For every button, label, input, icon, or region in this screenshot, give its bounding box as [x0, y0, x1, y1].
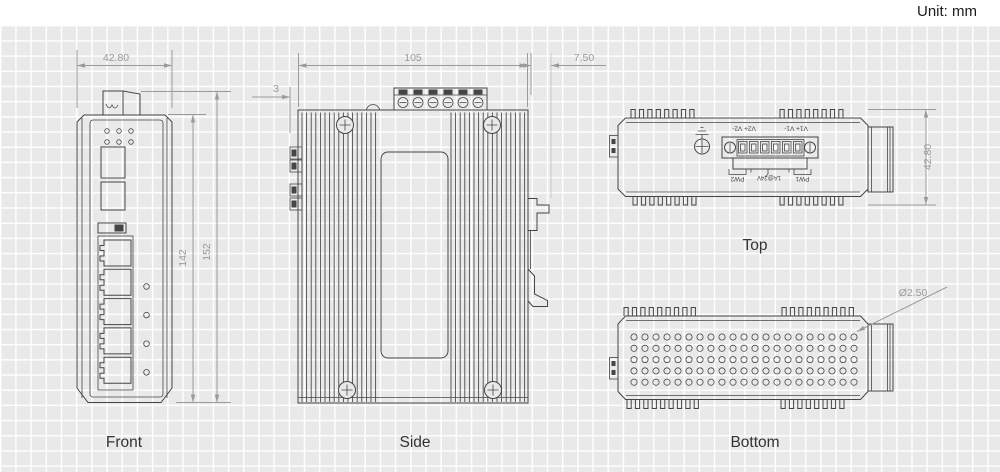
- vent-hole: [785, 379, 791, 385]
- vent-hole: [664, 368, 670, 374]
- vent-hole: [675, 334, 681, 340]
- side-port-tabs: [290, 147, 302, 210]
- vent-hole: [818, 379, 824, 385]
- vent-hole: [807, 379, 813, 385]
- vent-hole: [785, 345, 791, 351]
- vent-hole: [675, 345, 681, 351]
- dim-side-width: 105: [404, 52, 422, 64]
- vent-hole: [686, 357, 692, 363]
- front-port-leds: [144, 284, 150, 375]
- vent-hole: [719, 368, 725, 374]
- vent-hole: [664, 379, 670, 385]
- port-led: [144, 312, 150, 318]
- vent-hole: [708, 334, 714, 340]
- vent-hole: [829, 379, 835, 385]
- rj45-port: [100, 299, 131, 325]
- din-rail-clip: [528, 199, 549, 307]
- vent-hole-grid: [631, 334, 857, 385]
- rj45-port: [100, 357, 131, 383]
- front-rj45-ports: [100, 240, 131, 383]
- side-dimensions: 105 7.50 3: [252, 52, 606, 198]
- port-tab-mark: [292, 187, 297, 194]
- vent-hole: [697, 368, 703, 374]
- vent-hole: [631, 345, 637, 351]
- side-heatsink-fins: [302, 113, 525, 403]
- vent-hole: [763, 379, 769, 385]
- vent-hole: [719, 345, 725, 351]
- terminal-pole-slot: [785, 144, 790, 151]
- vent-hole: [730, 345, 736, 351]
- vent-hole: [851, 334, 857, 340]
- vent-hole: [708, 345, 714, 351]
- front-dimensions: 42.80 142 152: [77, 50, 231, 403]
- vent-hole: [730, 368, 736, 374]
- vent-hole: [851, 379, 857, 385]
- terminal-pole-slot: [774, 144, 779, 151]
- ground-symbol-icon: [696, 128, 709, 140]
- bottom-din-block: [868, 324, 893, 391]
- sfp-slot: [101, 182, 125, 210]
- vent-hole: [708, 368, 714, 374]
- top-left-tab: [610, 136, 619, 158]
- terminal-label-pw1: PW1: [795, 175, 809, 182]
- vent-hole: [840, 368, 846, 374]
- vent-hole: [818, 357, 824, 363]
- vent-hole: [796, 379, 802, 385]
- vent-hole: [752, 379, 758, 385]
- vent-hole: [741, 357, 747, 363]
- vent-hole: [653, 357, 659, 363]
- vent-hole: [796, 368, 802, 374]
- caption-bottom: Bottom: [730, 434, 779, 451]
- terminal-label-rating: 1A@24V: [757, 174, 781, 180]
- vent-hole: [697, 334, 703, 340]
- vent-hole: [774, 379, 780, 385]
- vent-hole: [807, 345, 813, 351]
- fin-tooth-row: [780, 110, 847, 119]
- rj45-port: [100, 269, 131, 295]
- front-port-column: [98, 236, 133, 390]
- vent-hole: [840, 345, 846, 351]
- side-body-outline: [298, 110, 528, 403]
- terminal-pole-slot: [796, 144, 801, 151]
- dim-hole-diameter: Ø2.50: [899, 287, 928, 299]
- fin-tooth-row: [631, 110, 698, 119]
- terminal-clamp: [444, 90, 453, 95]
- caption-side: Side: [399, 434, 430, 451]
- vent-hole: [642, 345, 648, 351]
- ground-screw-icon: [695, 128, 710, 155]
- top-din-block: [868, 127, 893, 192]
- vent-hole: [807, 368, 813, 374]
- status-led: [129, 129, 134, 134]
- terminal-pole-slot: [741, 144, 746, 151]
- dim-din-clip: 7.50: [574, 52, 595, 64]
- status-led: [105, 140, 110, 145]
- top-dimensions: 42.80: [868, 110, 936, 206]
- front-dip-switch: [98, 223, 126, 233]
- vent-hole: [719, 379, 725, 385]
- dim-tab-protrusion: 3: [273, 83, 279, 95]
- vent-hole: [675, 357, 681, 363]
- vent-hole: [818, 334, 824, 340]
- vent-hole: [829, 345, 835, 351]
- vent-hole: [686, 368, 692, 374]
- vent-hole: [664, 345, 670, 351]
- vent-hole: [840, 334, 846, 340]
- vent-hole: [741, 379, 747, 385]
- dim-front-total-height: 152: [201, 243, 213, 261]
- vent-hole: [697, 379, 703, 385]
- vent-hole: [752, 368, 758, 374]
- status-led: [117, 140, 122, 145]
- engineering-drawing: 42.80 142 152: [0, 0, 1000, 472]
- vent-hole: [840, 379, 846, 385]
- terminal-pole-slot: [763, 144, 768, 151]
- sfp-slot: [101, 147, 125, 178]
- fin-tooth-row: [781, 400, 848, 409]
- fin-tooth-row: [627, 400, 703, 409]
- bottom-dimensions: Ø2.50: [857, 287, 947, 332]
- dim-front-width: 42.80: [103, 52, 129, 64]
- side-screws: [337, 117, 502, 399]
- vent-hole: [807, 357, 813, 363]
- port-led: [144, 284, 150, 290]
- vent-hole: [741, 368, 747, 374]
- vent-hole: [829, 334, 835, 340]
- vent-hole: [719, 334, 725, 340]
- vent-hole: [653, 379, 659, 385]
- vent-hole: [631, 368, 637, 374]
- vent-hole: [774, 357, 780, 363]
- drawing-canvas: Unit: mm: [0, 0, 1000, 472]
- bottom-left-tab: [610, 358, 619, 380]
- vent-hole: [653, 368, 659, 374]
- vent-hole: [741, 334, 747, 340]
- terminal-label-pw2: PW2: [730, 175, 744, 182]
- vent-hole: [741, 345, 747, 351]
- vent-hole: [686, 345, 692, 351]
- vent-hole: [730, 357, 736, 363]
- vent-hole: [752, 345, 758, 351]
- vent-hole: [763, 345, 769, 351]
- vent-hole: [697, 357, 703, 363]
- vent-hole: [675, 379, 681, 385]
- vent-hole: [818, 368, 824, 374]
- vent-hole: [818, 345, 824, 351]
- side-terminal-screws: [398, 90, 483, 108]
- front-power-connector: [103, 91, 140, 115]
- rj45-port: [100, 240, 131, 266]
- terminal-clamp: [399, 90, 408, 95]
- terminal-clamp: [414, 90, 423, 95]
- vent-hole: [631, 379, 637, 385]
- vent-hole: [763, 357, 769, 363]
- vent-hole: [840, 357, 846, 363]
- status-led: [129, 140, 134, 145]
- port-led: [144, 341, 150, 347]
- vent-hole: [807, 334, 813, 340]
- vent-hole: [631, 357, 637, 363]
- bottom-view: [610, 308, 894, 409]
- bottom-body-outline: [618, 316, 868, 400]
- vent-hole: [642, 379, 648, 385]
- vent-hole: [686, 379, 692, 385]
- vent-hole: [697, 345, 703, 351]
- terminal-clamp: [459, 90, 468, 95]
- vent-hole: [785, 368, 791, 374]
- vent-hole: [642, 368, 648, 374]
- caption-top: Top: [743, 237, 768, 254]
- terminal-label-v2: V2+ V2-: [732, 125, 756, 132]
- vent-hole: [851, 357, 857, 363]
- vent-hole: [851, 368, 857, 374]
- vent-hole: [642, 334, 648, 340]
- port-tab-mark: [292, 201, 297, 208]
- dim-top-height: 42.80: [922, 144, 934, 170]
- fin-tooth-row: [624, 308, 700, 317]
- front-view: [77, 91, 172, 403]
- side-terminal-block: [394, 88, 487, 110]
- vent-hole: [730, 334, 736, 340]
- vent-hole: [763, 334, 769, 340]
- rj45-port: [100, 328, 131, 354]
- vent-hole: [686, 334, 692, 340]
- vent-hole: [708, 379, 714, 385]
- vent-hole: [796, 334, 802, 340]
- vent-hole: [653, 345, 659, 351]
- terminal-clamp: [429, 90, 438, 95]
- side-center-panel: [381, 152, 448, 358]
- vent-hole: [708, 357, 714, 363]
- fin-tooth-row: [633, 197, 700, 206]
- terminal-clamp: [474, 90, 483, 95]
- vent-hole: [785, 334, 791, 340]
- vent-hole: [774, 368, 780, 374]
- caption-front: Front: [106, 434, 143, 451]
- vent-hole: [829, 368, 835, 374]
- vent-hole: [664, 334, 670, 340]
- fin-tooth-row: [782, 308, 858, 317]
- status-led: [117, 129, 122, 134]
- port-tab-mark: [292, 163, 297, 170]
- vent-hole: [796, 357, 802, 363]
- front-status-leds: [105, 129, 134, 145]
- top-terminal-block: V2+ V2- V1+ V1- PW2 1A@24V PW1: [722, 125, 818, 183]
- fin-tooth-row: [780, 197, 847, 206]
- dim-front-body-height: 142: [177, 249, 189, 267]
- vent-hole: [664, 357, 670, 363]
- terminal-pole-slot: [752, 144, 757, 151]
- top-view: V2+ V2- V1+ V1- PW2 1A@24V PW1: [610, 110, 894, 206]
- port-tab-mark: [292, 150, 297, 157]
- vent-hole: [719, 357, 725, 363]
- port-led: [144, 370, 150, 376]
- vent-hole: [730, 379, 736, 385]
- vent-hole: [774, 334, 780, 340]
- vent-hole: [653, 334, 659, 340]
- vent-hole: [785, 357, 791, 363]
- vent-hole: [829, 357, 835, 363]
- vent-hole: [851, 345, 857, 351]
- vent-hole: [675, 368, 681, 374]
- terminal-label-v1: V1+ V1-: [784, 125, 808, 132]
- vent-hole: [796, 345, 802, 351]
- vent-hole: [642, 357, 648, 363]
- vent-hole: [631, 334, 637, 340]
- vent-hole: [752, 334, 758, 340]
- front-sfp-slots: [101, 147, 125, 210]
- side-view: [290, 88, 549, 403]
- terminal-poles: [739, 142, 803, 154]
- status-led: [105, 129, 110, 134]
- top-fin-teeth: [631, 110, 847, 206]
- vent-hole: [752, 357, 758, 363]
- vent-hole: [774, 345, 780, 351]
- vent-hole: [763, 368, 769, 374]
